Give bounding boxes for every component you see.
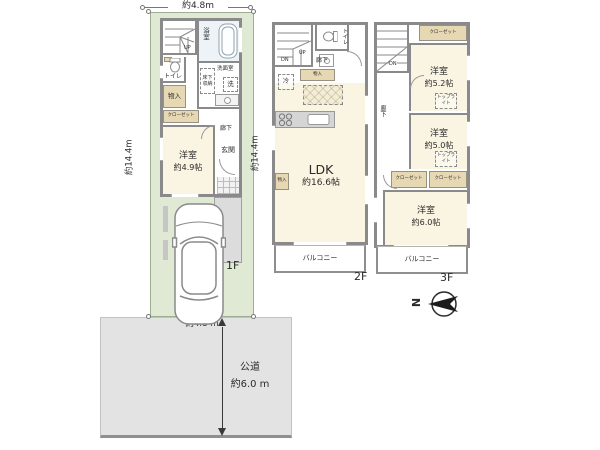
room-toilet-2f: トイレ: [315, 25, 349, 51]
window: [374, 197, 377, 223]
road-area: [100, 317, 292, 438]
plot-corner-marker: [146, 9, 151, 14]
room-storage-2f: 物入: [300, 69, 335, 81]
hallway-3f-label: 廊下: [379, 105, 385, 117]
house-3f: DN クローゼット 洋室 約5.2帖 トップライト 廊下 洋室 約5.0帖 トッ…: [374, 22, 470, 248]
dimension-depth-1f-label: 約14.4m: [126, 139, 135, 175]
room-bedroom-6-0: 洋室 約6.0帖: [383, 190, 467, 245]
room-bedroom-5-0-size: 約5.0帖: [411, 141, 467, 150]
washer-space: 洗: [223, 77, 238, 92]
hallway-1f-label: 廊下: [220, 126, 232, 132]
stairs-2f: UP DN: [275, 25, 313, 67]
balcony-2f: バルコニー: [274, 245, 366, 273]
plot-corner-marker: [146, 314, 151, 319]
room-bedroom-6-0-name: 洋室: [385, 206, 467, 216]
stove-sink-icon: [276, 112, 334, 127]
room-closet-1f: クローゼット: [163, 110, 199, 123]
toplight: トップライト: [435, 151, 457, 167]
dimension-end-marker: [140, 5, 145, 10]
kitchen-counter: [275, 111, 335, 128]
wall: [197, 63, 199, 109]
room-closet-3f-top: クローゼット: [419, 25, 467, 41]
stairs-up-label: UP: [184, 46, 191, 51]
room-ldk-size: 約16.6帖: [291, 178, 351, 189]
bathtub-icon: [218, 23, 238, 59]
door-arc: [219, 159, 235, 175]
plot-corner-marker: [251, 9, 256, 14]
room-entrance-label: 玄関: [217, 145, 239, 155]
room-toilet-2f-label: トイレ: [341, 28, 347, 45]
door-arc: [383, 175, 397, 189]
road-width-arrow: [222, 327, 223, 429]
plot-corner-marker: [251, 314, 256, 319]
balcony-3f: バルコニー: [376, 246, 468, 274]
window: [171, 194, 199, 197]
room-storage-1f: 物入: [163, 85, 186, 108]
room-ldk-name: LDK: [291, 163, 351, 177]
floor-label-1f: 1F: [226, 260, 239, 271]
arrow-down-icon: [218, 428, 226, 436]
car-icon: [172, 200, 226, 328]
fence-strip: [163, 206, 168, 232]
compass-needle-icon: [426, 287, 460, 321]
window: [467, 121, 470, 147]
door-arc: [347, 51, 362, 66]
hallway-2f-label: 廊下: [316, 58, 328, 64]
toilet-icon: [168, 58, 182, 73]
room-bedroom-5-0: 洋室 約5.0帖 トップライト: [409, 113, 467, 169]
wall: [197, 107, 239, 109]
dimension-depth-2f-label: 約14.4m: [252, 135, 261, 171]
road-width-label: 約6.0 m: [224, 379, 276, 391]
room-bath: 浴室: [197, 21, 239, 63]
window: [272, 125, 275, 151]
underfloor-storage: 床下収納: [200, 68, 215, 94]
dimension-width-top: 約4.8m: [168, 0, 228, 12]
basin-bowl-icon: [224, 97, 231, 104]
room-bedroom-6-0-size: 約6.0帖: [385, 218, 467, 227]
dimension-depth-1f: 約14.4m: [120, 122, 140, 192]
stairs-down-label: DN: [281, 58, 289, 63]
room-toilet-1f: トイレ: [163, 57, 186, 83]
window: [365, 95, 368, 125]
stairs-3f: DN: [377, 25, 409, 73]
room-closet-3f-b: クローゼット: [429, 171, 467, 188]
house-1f: UP 浴室 トイレ 物入 クローゼット 洗面室 床下収納 洗: [160, 18, 242, 197]
room-bedroom-1f-name: 洋室: [163, 151, 213, 161]
room-washroom-label: 洗面室: [217, 67, 234, 73]
room-bath-label: 浴室: [202, 27, 209, 40]
toplight: トップライト: [435, 93, 457, 109]
dimension-end-marker: [248, 5, 253, 10]
wash-basin: [215, 94, 239, 106]
window: [467, 55, 470, 81]
toilet-icon: [323, 30, 338, 44]
floor-label-2f: 2F: [354, 271, 367, 282]
window: [239, 27, 242, 53]
room-bedroom-1f-size: 約4.9帖: [163, 163, 213, 172]
room-bedroom-5-0-name: 洋室: [411, 129, 467, 139]
floor-plan: 約4.8 m 公道 約6.0 m 約4.8m 約14.4m 約14.4m UP …: [0, 0, 600, 450]
window: [365, 175, 368, 205]
entrance-tile: [217, 177, 239, 194]
window: [160, 65, 163, 79]
stairs-1f: UP: [163, 21, 197, 55]
fence-strip: [163, 240, 168, 260]
window: [160, 137, 163, 161]
stairs-down-label: DN: [389, 62, 397, 67]
compass-north-label: N: [411, 298, 422, 307]
floor-label-3f: 3F: [440, 272, 453, 283]
room-wall-storage-2f: 物入: [275, 173, 289, 190]
compass: N: [410, 286, 462, 322]
road-name: 公道: [228, 362, 272, 374]
fridge-space: 冷: [278, 74, 294, 90]
window: [467, 203, 470, 229]
house-2f: UP DN トイレ 廊下 物入 冷: [272, 22, 368, 245]
room-toilet-1f-label: トイレ: [164, 74, 182, 80]
hatch-area: [303, 85, 343, 105]
dimension-depth-2f: 約14.4m: [246, 118, 266, 188]
stairs-up-label: UP: [299, 51, 306, 56]
